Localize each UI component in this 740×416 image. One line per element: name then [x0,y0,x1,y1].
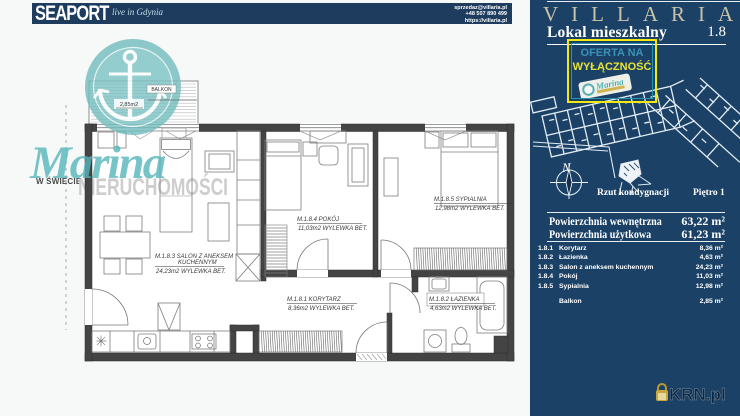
svg-text:M.1.8.5 SYPIALNIA: M.1.8.5 SYPIALNIA [434,197,487,203]
svg-text:M.1.8.4 POKÓJ: M.1.8.4 POKÓJ [297,216,340,223]
svg-text:4,63m2 WYLEWKA BET.: 4,63m2 WYLEWKA BET. [430,306,497,312]
svg-text:Marina: Marina [29,137,166,189]
svg-text:12,98m2 WYLEWKA BET.: 12,98m2 WYLEWKA BET. [435,206,505,212]
svg-text:BALKON: BALKON [151,87,172,93]
svg-text:24,23m2 WYLEWKA BET.: 24,23m2 WYLEWKA BET. [155,269,226,275]
svg-text:M.1.8.1 KORYTARZ: M.1.8.1 KORYTARZ [287,297,341,303]
svg-text:N: N [561,160,572,175]
svg-text:11,03m2 WYLEWKA BET.: 11,03m2 WYLEWKA BET. [298,226,368,232]
svg-text:M.1.8.2 ŁAZIENKA: M.1.8.2 ŁAZIENKA [429,297,480,303]
svg-text:8,36m2 WYLEWKA BET.: 8,36m2 WYLEWKA BET. [288,306,355,312]
svg-text:KUCHENNYM: KUCHENNYM [178,260,217,266]
svg-text:KRN.pl: KRN.pl [669,385,726,404]
svg-text:2,85m2: 2,85m2 [120,102,138,108]
